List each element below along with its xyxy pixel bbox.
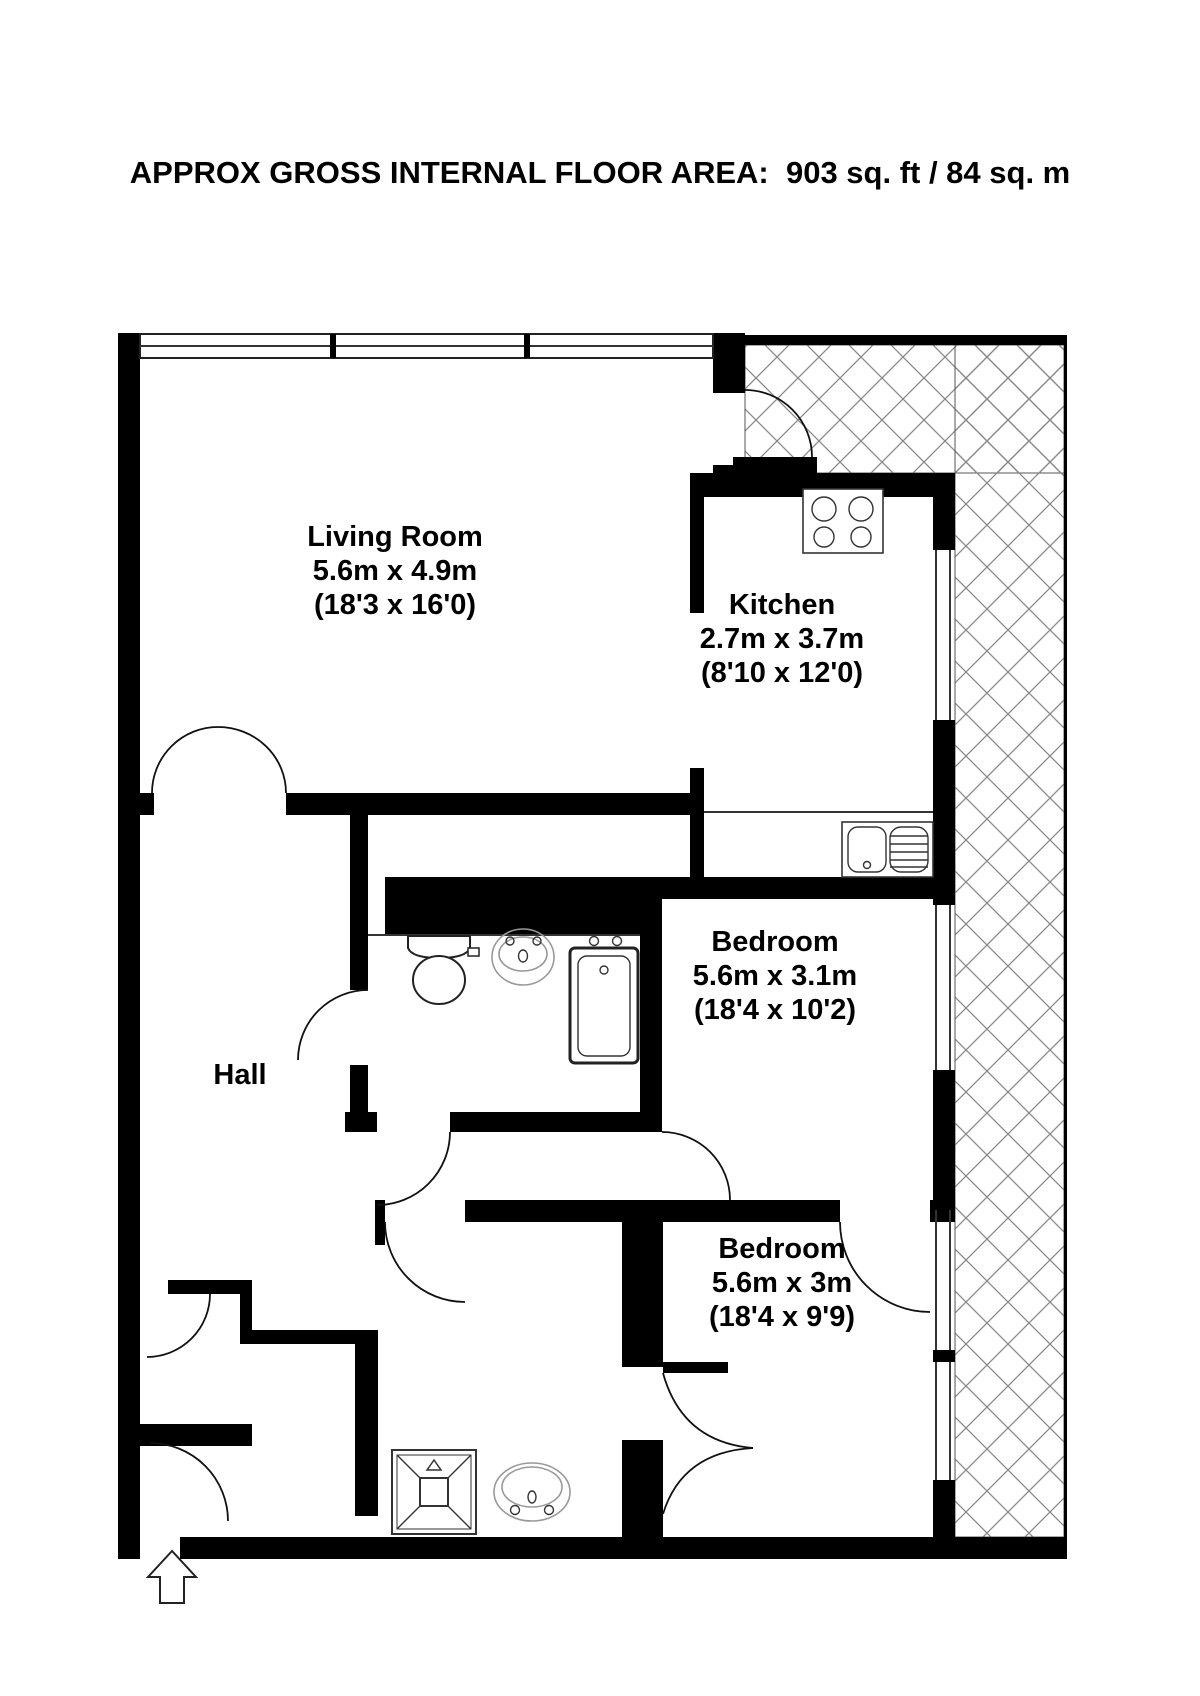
windows-right-wall bbox=[935, 550, 951, 1480]
toilet-icon bbox=[408, 936, 479, 1004]
floorplan-drawing bbox=[0, 0, 1200, 1696]
kitchen-sink-icon bbox=[842, 822, 933, 877]
window-band-top bbox=[140, 334, 713, 358]
label-hall: Hall bbox=[165, 1058, 315, 1092]
washbasin-2-icon bbox=[494, 1463, 570, 1521]
washbasin-icon bbox=[492, 929, 554, 985]
floorplan-page: APPROX GROSS INTERNAL FLOOR AREA: 903 sq… bbox=[0, 0, 1200, 1696]
label-bedroom-1: Bedroom 5.6m x 3.1m (18'4 x 10'2) bbox=[625, 925, 925, 1027]
kitchen-counter-line bbox=[704, 811, 933, 813]
label-kitchen: Kitchen 2.7m x 3.7m (8'10 x 12'0) bbox=[632, 588, 932, 690]
shower-icon bbox=[392, 1450, 476, 1534]
label-living-room: Living Room 5.6m x 4.9m (18'3 x 16'0) bbox=[230, 520, 560, 622]
label-bedroom-2: Bedroom 5.6m x 3m (18'4 x 9'9) bbox=[632, 1232, 932, 1334]
hob-icon bbox=[803, 489, 883, 553]
